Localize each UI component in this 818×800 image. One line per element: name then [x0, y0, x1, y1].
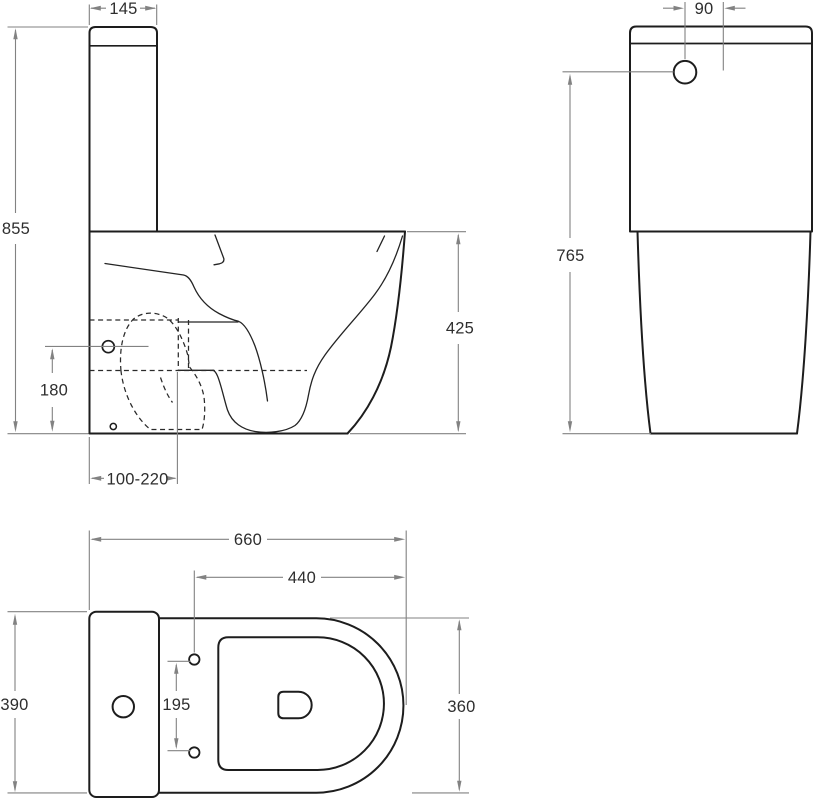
- side-view: 145 855 425 180 100-220: [2, 0, 474, 489]
- front-button-height-label: 765: [556, 247, 584, 265]
- dim-front-button-height: 765: [556, 72, 673, 434]
- front-pedestal-right-edge: [797, 232, 811, 434]
- plan-seat-outline: [218, 637, 384, 770]
- plan-drain-outline: [278, 692, 311, 719]
- dim-plan-back-width: 390: [0, 612, 87, 793]
- plan-bowl-width-label: 360: [447, 698, 475, 716]
- plan-back-width-label: 390: [0, 696, 28, 714]
- side-fixing-hole: [110, 423, 116, 429]
- toilet-dimension-drawing: 145 855 425 180 100-220: [0, 0, 818, 800]
- technical-drawing-canvas: 145 855 425 180 100-220: [0, 0, 818, 800]
- side-inlet-height-label: 180: [40, 382, 68, 400]
- dim-side-rough-in: 100-220: [89, 372, 177, 489]
- plan-bolt-spacing-label: 195: [162, 696, 190, 714]
- front-tank-outline: [630, 27, 812, 232]
- side-trap-dashed-outline: [121, 313, 205, 429]
- dim-side-inlet-height: 180: [40, 346, 149, 431]
- front-flush-button: [674, 61, 697, 84]
- plan-bolt-hole-top: [189, 654, 199, 664]
- side-rough-in-label: 100-220: [107, 471, 169, 489]
- side-body-front-profile: [348, 232, 406, 434]
- side-total-height-label: 855: [2, 220, 30, 238]
- side-tank-outline: [90, 27, 158, 232]
- plan-view: 660 440 390 195 360: [0, 531, 475, 798]
- dim-plan-bolt-spacing: 195: [162, 661, 190, 750]
- plan-bolts-to-front-label: 440: [288, 569, 316, 587]
- front-pedestal-left-edge: [638, 232, 651, 434]
- front-view: 90 765: [556, 0, 812, 434]
- dim-side-tank-width: 145: [89, 0, 156, 25]
- front-button-offset-label: 90: [695, 0, 714, 18]
- plan-bolt-hole-bottom: [189, 747, 199, 757]
- side-bowl-height-label: 425: [446, 320, 474, 338]
- dim-side-total-height: 855: [2, 27, 89, 434]
- side-seat-and-bowl-back-curve: [105, 264, 268, 402]
- dim-side-bowl-height: 425: [350, 232, 474, 434]
- plan-body-outline: [159, 618, 403, 792]
- side-lid-edge-line: [377, 236, 385, 252]
- side-bowl-cavity-curve: [213, 236, 403, 432]
- side-tank-width-label: 145: [109, 0, 137, 18]
- plan-total-depth-label: 660: [234, 531, 262, 549]
- side-seat-hinge-line: [214, 235, 224, 265]
- side-body-left-bottom: [90, 232, 348, 434]
- side-trap-inner-dashed-arc: [161, 378, 173, 403]
- dim-front-button-offset: 90: [663, 0, 746, 71]
- plan-tank-outline: [89, 612, 159, 797]
